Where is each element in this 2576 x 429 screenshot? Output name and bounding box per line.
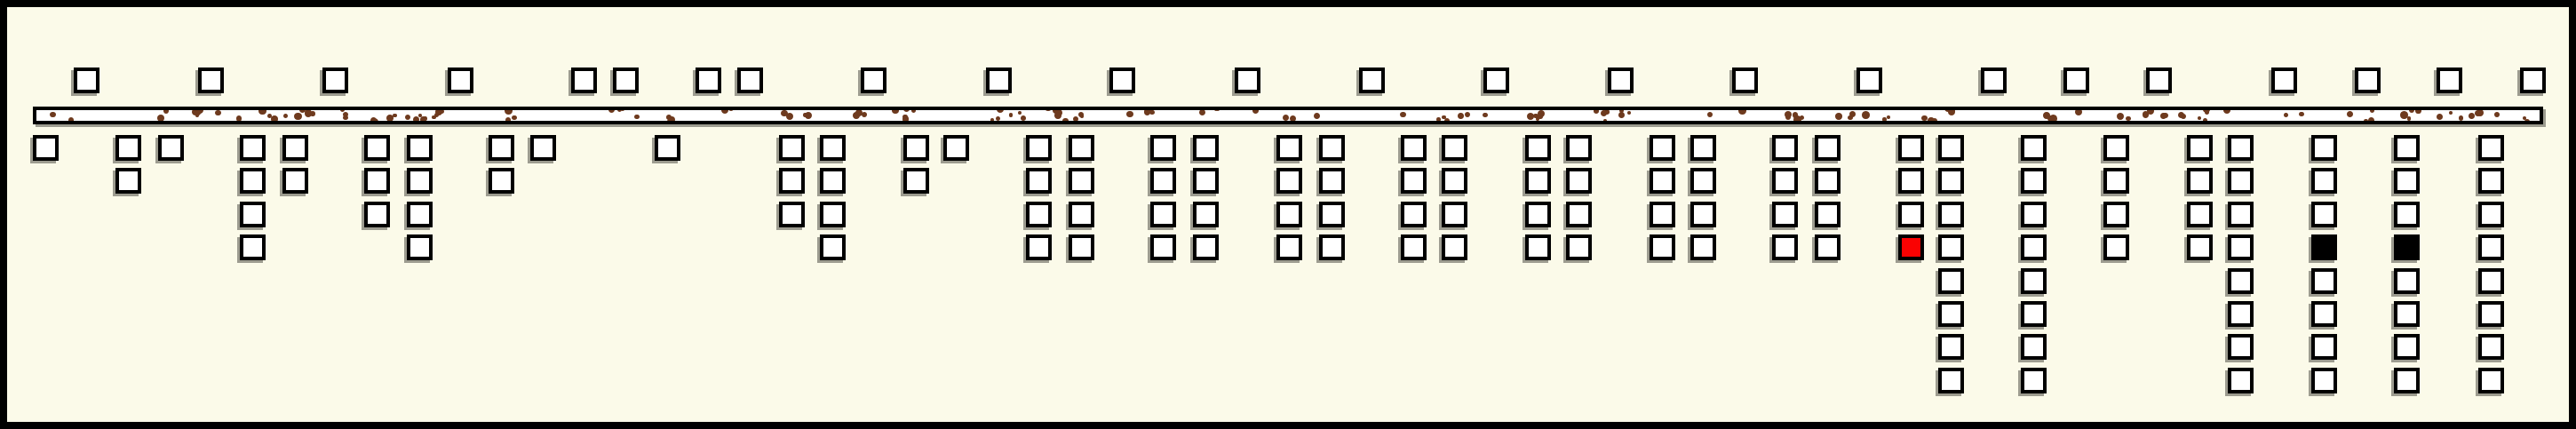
- marker-square[interactable]: [1442, 168, 1467, 194]
- marker-square[interactable]: [1069, 202, 1094, 227]
- marker-square[interactable]: [1938, 268, 1964, 294]
- marker-square[interactable]: [2228, 301, 2254, 327]
- marker-square[interactable]: [2478, 202, 2504, 227]
- marker-square[interactable]: [2478, 268, 2504, 294]
- marker-square[interactable]: [1650, 202, 1675, 227]
- marker-square[interactable]: [2478, 168, 2504, 194]
- marker-square[interactable]: [158, 135, 184, 161]
- marker-square[interactable]: [282, 135, 308, 161]
- marker-square[interactable]: [364, 135, 390, 161]
- marker-square[interactable]: [1442, 135, 1467, 161]
- marker-square[interactable]: [1815, 135, 1841, 161]
- marker-square[interactable]: [1276, 234, 1302, 260]
- marker-square[interactable]: [2187, 234, 2213, 260]
- marker-square[interactable]: [2187, 135, 2213, 161]
- marker-square[interactable]: [2103, 168, 2129, 194]
- marker-square[interactable]: [655, 135, 680, 161]
- marker-square[interactable]: [1319, 234, 1345, 260]
- marker-square[interactable]: [2228, 334, 2254, 360]
- marker-square[interactable]: [115, 135, 141, 161]
- marker-square[interactable]: [2394, 368, 2420, 393]
- marker-square-red[interactable]: [1898, 234, 1924, 260]
- marker-square[interactable]: [1319, 202, 1345, 227]
- marker-square[interactable]: [115, 168, 141, 194]
- marker-square[interactable]: [779, 135, 805, 161]
- marker-square[interactable]: [2394, 268, 2420, 294]
- marker-square[interactable]: [2478, 301, 2504, 327]
- marker-square[interactable]: [2394, 168, 2420, 194]
- marker-square[interactable]: [1525, 168, 1551, 194]
- marker-square[interactable]: [2021, 234, 2047, 260]
- marker-square[interactable]: [2311, 268, 2337, 294]
- marker-square[interactable]: [1525, 135, 1551, 161]
- marker-square[interactable]: [2228, 268, 2254, 294]
- marker-square[interactable]: [1938, 202, 1964, 227]
- marker-square[interactable]: [1276, 135, 1302, 161]
- marker-square[interactable]: [1772, 168, 1798, 194]
- marker-square[interactable]: [903, 135, 929, 161]
- marker-square[interactable]: [489, 135, 514, 161]
- marker-square[interactable]: [2311, 368, 2337, 393]
- marker-square[interactable]: [2103, 135, 2129, 161]
- marker-square[interactable]: [407, 135, 433, 161]
- marker-square[interactable]: [2187, 202, 2213, 227]
- marker-square[interactable]: [2311, 135, 2337, 161]
- marker-square[interactable]: [1898, 168, 1924, 194]
- marker-square[interactable]: [820, 135, 846, 161]
- marker-square[interactable]: [820, 202, 846, 227]
- marker-square[interactable]: [820, 168, 846, 194]
- marker-square[interactable]: [1772, 234, 1798, 260]
- marker-square[interactable]: [943, 135, 969, 161]
- marker-square[interactable]: [2228, 234, 2254, 260]
- marker-square[interactable]: [240, 135, 266, 161]
- marker-square[interactable]: [779, 202, 805, 227]
- marker-square[interactable]: [1319, 135, 1345, 161]
- marker-square[interactable]: [1026, 168, 1052, 194]
- marker-square[interactable]: [1898, 202, 1924, 227]
- marker-square[interactable]: [2478, 234, 2504, 260]
- marker-square[interactable]: [2103, 234, 2129, 260]
- marker-square[interactable]: [1815, 202, 1841, 227]
- marker-square[interactable]: [240, 202, 266, 227]
- marker-square[interactable]: [1690, 202, 1716, 227]
- marker-square[interactable]: [1938, 234, 1964, 260]
- marker-square[interactable]: [1193, 168, 1219, 194]
- marker-square[interactable]: [1938, 301, 1964, 327]
- marker-square[interactable]: [1815, 168, 1841, 194]
- marker-square[interactable]: [820, 234, 846, 260]
- marker-square[interactable]: [1026, 202, 1052, 227]
- marker-square[interactable]: [2394, 135, 2420, 161]
- marker-square[interactable]: [1650, 168, 1675, 194]
- marker-square[interactable]: [1650, 234, 1675, 260]
- marker-square[interactable]: [903, 168, 929, 194]
- marker-square[interactable]: [1690, 135, 1716, 161]
- marker-square[interactable]: [2021, 168, 2047, 194]
- marker-square[interactable]: [2478, 334, 2504, 360]
- marker-square[interactable]: [1690, 234, 1716, 260]
- marker-square[interactable]: [2021, 135, 2047, 161]
- marker-square[interactable]: [1150, 202, 1176, 227]
- marker-square[interactable]: [1938, 168, 1964, 194]
- marker-square[interactable]: [1938, 135, 1964, 161]
- marker-square[interactable]: [1150, 168, 1176, 194]
- marker-square[interactable]: [1193, 202, 1219, 227]
- marker-square[interactable]: [1898, 135, 1924, 161]
- marker-square-black[interactable]: [2311, 234, 2337, 260]
- marker-square[interactable]: [1525, 202, 1551, 227]
- marker-square[interactable]: [2021, 368, 2047, 393]
- marker-square[interactable]: [1650, 135, 1675, 161]
- marker-square[interactable]: [1566, 202, 1592, 227]
- marker-square[interactable]: [364, 202, 390, 227]
- marker-square[interactable]: [1150, 234, 1176, 260]
- marker-square[interactable]: [1772, 202, 1798, 227]
- marker-square[interactable]: [1566, 168, 1592, 194]
- marker-square[interactable]: [2228, 368, 2254, 393]
- marker-square[interactable]: [1401, 135, 1427, 161]
- marker-square[interactable]: [282, 168, 308, 194]
- marker-square[interactable]: [1566, 135, 1592, 161]
- marker-square-black[interactable]: [2394, 234, 2420, 260]
- marker-square[interactable]: [407, 202, 433, 227]
- marker-square[interactable]: [2311, 202, 2337, 227]
- marker-square[interactable]: [1193, 135, 1219, 161]
- marker-square[interactable]: [2478, 135, 2504, 161]
- marker-square[interactable]: [33, 135, 59, 161]
- marker-square[interactable]: [2311, 334, 2337, 360]
- marker-columns: [7, 7, 2569, 422]
- marker-square[interactable]: [2478, 368, 2504, 393]
- marker-square[interactable]: [489, 168, 514, 194]
- marker-square[interactable]: [1690, 168, 1716, 194]
- marker-square[interactable]: [1938, 368, 1964, 393]
- marker-square[interactable]: [1772, 135, 1798, 161]
- marker-square[interactable]: [1193, 234, 1219, 260]
- marker-square[interactable]: [2021, 334, 2047, 360]
- marker-square[interactable]: [1442, 234, 1467, 260]
- marker-square[interactable]: [1069, 168, 1094, 194]
- marker-square[interactable]: [1566, 234, 1592, 260]
- marker-square[interactable]: [1401, 168, 1427, 194]
- marker-square[interactable]: [407, 168, 433, 194]
- marker-square[interactable]: [1026, 234, 1052, 260]
- marker-square[interactable]: [2187, 168, 2213, 194]
- marker-square[interactable]: [1938, 334, 1964, 360]
- diagram-frame: [0, 0, 2576, 429]
- marker-square[interactable]: [1815, 234, 1841, 260]
- marker-square[interactable]: [1319, 168, 1345, 194]
- marker-square[interactable]: [2228, 202, 2254, 227]
- marker-square[interactable]: [1276, 168, 1302, 194]
- marker-square[interactable]: [2311, 168, 2337, 194]
- marker-square[interactable]: [1442, 202, 1467, 227]
- marker-square[interactable]: [240, 234, 266, 260]
- marker-square[interactable]: [1150, 135, 1176, 161]
- marker-square[interactable]: [530, 135, 556, 161]
- marker-square[interactable]: [1026, 135, 1052, 161]
- marker-square[interactable]: [2394, 301, 2420, 327]
- marker-square[interactable]: [240, 168, 266, 194]
- marker-square[interactable]: [2311, 301, 2337, 327]
- marker-square[interactable]: [2394, 202, 2420, 227]
- marker-square[interactable]: [779, 168, 805, 194]
- marker-square[interactable]: [2021, 202, 2047, 227]
- marker-square[interactable]: [1069, 234, 1094, 260]
- marker-square[interactable]: [2103, 202, 2129, 227]
- marker-square[interactable]: [1401, 202, 1427, 227]
- marker-square[interactable]: [1276, 202, 1302, 227]
- marker-square[interactable]: [364, 168, 390, 194]
- marker-square[interactable]: [1069, 135, 1094, 161]
- marker-square[interactable]: [2021, 268, 2047, 294]
- marker-square[interactable]: [2228, 168, 2254, 194]
- marker-square[interactable]: [407, 234, 433, 260]
- marker-square[interactable]: [1525, 234, 1551, 260]
- marker-square[interactable]: [2021, 301, 2047, 327]
- marker-square[interactable]: [1401, 234, 1427, 260]
- marker-square[interactable]: [2394, 334, 2420, 360]
- marker-square[interactable]: [2228, 135, 2254, 161]
